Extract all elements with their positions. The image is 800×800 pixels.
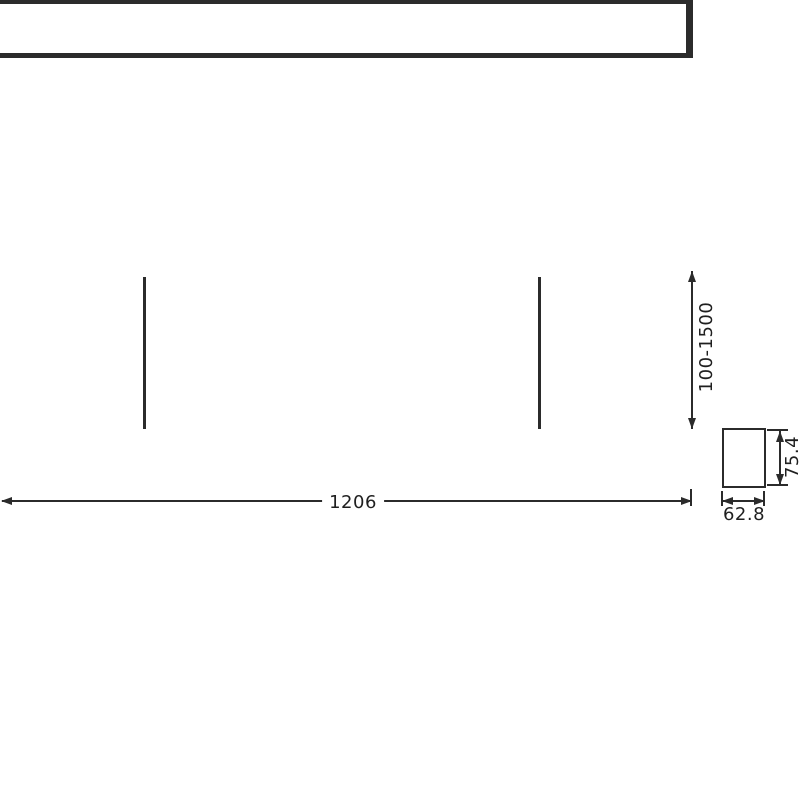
arrow-right-icon — [681, 497, 692, 505]
fixture-side-view — [0, 0, 693, 58]
arrow-up-icon — [688, 271, 696, 282]
suspension-height-dim-line — [691, 271, 693, 429]
suspension-wire-right — [538, 277, 541, 429]
profile-width-label: 62.8 — [723, 504, 765, 526]
arrow-down-icon — [688, 418, 696, 429]
arrow-left-icon — [1, 497, 12, 505]
cross-section-view — [722, 428, 766, 488]
dimension-drawing: 100-1500 1206 75.4 62.8 — [0, 0, 800, 800]
profile-height-label: 75.4 — [782, 436, 800, 478]
suspension-height-label: 100-1500 — [696, 302, 718, 393]
fixture-length-label: 1206 — [322, 492, 384, 514]
suspension-wire-left — [143, 277, 146, 429]
